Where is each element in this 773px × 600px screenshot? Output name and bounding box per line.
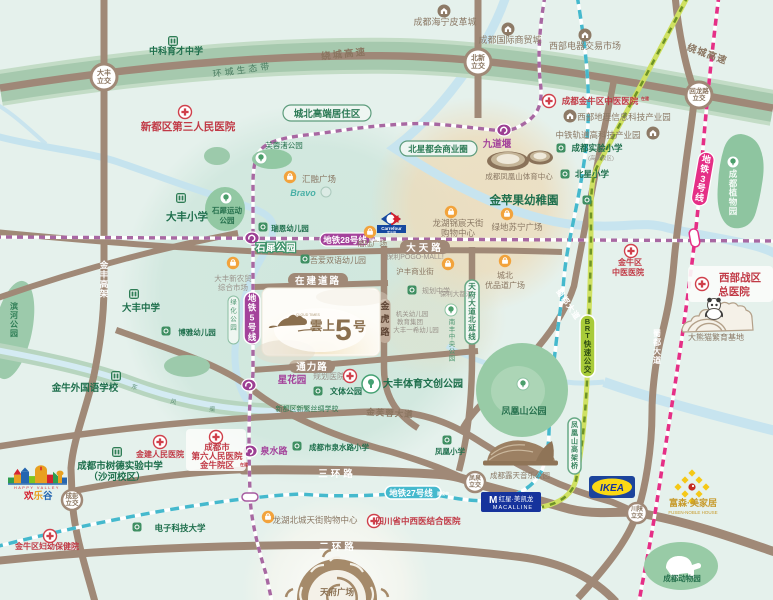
svg-text:绿化公园: 绿化公园 [230, 297, 237, 332]
svg-text:成都国际商贸城: 成都国际商贸城 [478, 34, 541, 45]
svg-text:大丰小学: 大丰小学 [166, 210, 208, 223]
svg-text:新都区第三人民医院: 新都区第三人民医院 [141, 120, 236, 133]
svg-text:绿地苏宁广场: 绿地苏宁广场 [491, 222, 542, 232]
svg-text:家乐福: 家乐福 [387, 230, 396, 235]
svg-text:(高新校区): (高新校区) [588, 154, 614, 162]
svg-text:CLOUD TIMES: CLOUD TIMES [296, 313, 321, 317]
svg-text:总医院: 总医院 [718, 285, 750, 298]
svg-text:在建道路: 在建道路 [295, 275, 341, 287]
svg-text:成都市树德实验中学: 成都市树德实验中学 [77, 460, 163, 472]
svg-text:成都植物园: 成都植物园 [728, 169, 738, 216]
svg-text:HAPPY VALLEY: HAPPY VALLEY [14, 486, 60, 490]
svg-text:购物中心: 购物中心 [441, 228, 476, 238]
svg-text:综合市场: 综合市场 [218, 282, 248, 292]
svg-text:大丰新农贸: 大丰新农贸 [214, 273, 252, 283]
svg-text:雲上: 雲上 [310, 318, 336, 333]
svg-text:成都实验小学: 成都实验小学 [571, 143, 623, 153]
svg-text:城北高端居住区: 城北高端居住区 [294, 108, 361, 120]
svg-text:红星·美凯龙: 红星·美凯龙 [499, 494, 534, 503]
svg-text:金牛区妇幼保健院: 金牛区妇幼保健院 [14, 541, 79, 551]
svg-text:回龙路: 回龙路 [689, 86, 709, 95]
svg-text:电子科技大学: 电子科技大学 [154, 523, 206, 533]
svg-text:泉水路: 泉水路 [259, 445, 288, 456]
svg-text:建设中: 建设中 [437, 490, 449, 496]
svg-text:南丰中央公园: 南丰中央公园 [449, 317, 456, 363]
svg-text:金牛外国语学校: 金牛外国语学校 [51, 382, 119, 394]
svg-text:（沙河校区）: （沙河校区） [88, 471, 145, 483]
svg-text:汇融广场: 汇融广场 [302, 174, 336, 184]
svg-text:金牛区: 金牛区 [617, 257, 642, 267]
svg-text:北新: 北新 [471, 53, 485, 62]
svg-text:凤凰小学: 凤凰小学 [435, 446, 465, 456]
svg-text:立交: 立交 [97, 76, 112, 85]
svg-text:金苹果幼稚園: 金苹果幼稚園 [489, 193, 559, 207]
svg-text:金丰高架: 金丰高架 [99, 260, 109, 299]
svg-text:星花园: 星花园 [278, 374, 307, 386]
svg-text:富森·美家居: 富森·美家居 [669, 497, 717, 508]
svg-text:成都金牛区中医医院: 成都金牛区中医医院 [562, 96, 639, 106]
svg-text:优品道广场: 优品道广场 [485, 280, 525, 290]
svg-text:FUSEN-NOBLE HOUSE: FUSEN-NOBLE HOUSE [668, 510, 717, 515]
svg-text:金建人民医院: 金建人民医院 [135, 449, 184, 459]
svg-text:大丰一希幼儿园: 大丰一希幼儿园 [393, 325, 439, 334]
svg-text:凤凰山高架桥: 凤凰山高架桥 [570, 420, 579, 470]
svg-text:5: 5 [335, 314, 352, 347]
svg-text:天府广场: 天府广场 [320, 587, 355, 597]
svg-text:凤凰山公园: 凤凰山公园 [501, 405, 546, 416]
svg-text:凤泉: 凤泉 [469, 474, 482, 482]
svg-text:在建: 在建 [641, 95, 650, 101]
svg-text:沪丰商业街: 沪丰商业街 [396, 266, 434, 276]
svg-text:石犀公园: 石犀公园 [255, 243, 296, 254]
svg-text:成都市泉水路小学: 成都市泉水路小学 [309, 442, 369, 452]
svg-text:保利POGO-MALL!: 保利POGO-MALL! [386, 252, 444, 261]
svg-text:成都海宁皮革城: 成都海宁皮革城 [413, 16, 476, 27]
svg-text:保利大都汇: 保利大都汇 [440, 289, 473, 298]
svg-text:滨河公园: 滨河公园 [10, 301, 18, 338]
svg-text:中铁轨道高科技产业园: 中铁轨道高科技产业园 [555, 130, 640, 140]
svg-text:四川省中西医结合医院: 四川省中西医结合医院 [375, 516, 461, 526]
svg-text:大天路: 大天路 [406, 242, 444, 254]
svg-text:西部地理信息科技产业园: 西部地理信息科技产业园 [577, 112, 671, 122]
svg-text:文体公园: 文体公园 [330, 386, 362, 396]
svg-text:公园: 公园 [220, 216, 235, 225]
svg-text:MACALLINE: MACALLINE [493, 505, 533, 511]
svg-text:立交: 立交 [693, 93, 707, 102]
svg-text:大丰中学: 大丰中学 [122, 302, 161, 314]
svg-text:瑞恩幼儿园: 瑞恩幼儿园 [271, 223, 309, 233]
svg-text:福陆广场: 福陆广场 [357, 238, 387, 248]
svg-text:Bravo: Bravo [290, 188, 316, 198]
svg-text:立交: 立交 [631, 512, 643, 520]
svg-text:教育集团: 教育集团 [397, 317, 423, 326]
svg-text:北星都会商业圈: 北星都会商业圈 [408, 144, 468, 154]
svg-text:大熊猫繁育基地: 大熊猫繁育基地 [688, 332, 744, 342]
svg-text:博雅幼儿园: 博雅幼儿园 [178, 327, 216, 337]
svg-text:二环路: 二环路 [319, 541, 357, 553]
svg-text:中科育才中学: 中科育才中学 [149, 45, 203, 56]
svg-text:成都露天音乐公园: 成都露天音乐公园 [490, 470, 550, 480]
svg-text:IKEA: IKEA [600, 483, 624, 494]
svg-text:金虎路: 金虎路 [379, 300, 390, 337]
svg-text:芙蓉渚公园: 芙蓉渚公园 [265, 140, 303, 150]
svg-text:大丰: 大丰 [97, 68, 111, 77]
svg-text:机关幼儿园: 机关幼儿园 [396, 309, 429, 318]
svg-text:金牛院区: 金牛院区 [199, 460, 235, 470]
svg-text:川陕: 川陕 [630, 505, 643, 513]
svg-text:成彭: 成彭 [66, 491, 80, 500]
svg-text:蜀都大道: 蜀都大道 [652, 328, 661, 365]
svg-text:三环路: 三环路 [318, 468, 356, 480]
svg-text:在建: 在建 [240, 461, 249, 467]
svg-text:吾爱双语幼儿园: 吾爱双语幼儿园 [310, 255, 366, 265]
svg-text:欢乐谷: 欢乐谷 [23, 490, 53, 502]
svg-text:龙湖锦宸天街: 龙湖锦宸天街 [432, 218, 484, 228]
svg-text:规划医院: 规划医院 [313, 371, 345, 381]
svg-text:新都区新繁丝绸学校: 新都区新繁丝绸学校 [276, 404, 339, 413]
svg-text:中医医院: 中医医院 [612, 267, 644, 277]
svg-text:西部电器交易市场: 西部电器交易市场 [549, 40, 621, 51]
svg-text:西部战区: 西部战区 [719, 271, 761, 284]
svg-text:地铁27号线: 地铁27号线 [389, 488, 433, 498]
svg-text:立交: 立交 [66, 498, 80, 507]
svg-text:九道堰: 九道堰 [482, 138, 512, 150]
svg-text:石犀运动: 石犀运动 [211, 205, 242, 215]
svg-text:立交: 立交 [471, 61, 486, 70]
svg-text:立交: 立交 [469, 481, 481, 489]
svg-text:北星小学: 北星小学 [575, 169, 610, 179]
svg-text:大丰体育文创公园: 大丰体育文创公园 [383, 377, 463, 390]
svg-text:成都动物园: 成都动物园 [663, 573, 701, 583]
svg-text:成都凤凰山体育中心: 成都凤凰山体育中心 [485, 171, 553, 181]
svg-text:龙湖北城天街购物中心: 龙湖北城天街购物中心 [272, 515, 358, 525]
svg-text:号: 号 [353, 319, 366, 334]
svg-text:城北: 城北 [497, 271, 513, 280]
